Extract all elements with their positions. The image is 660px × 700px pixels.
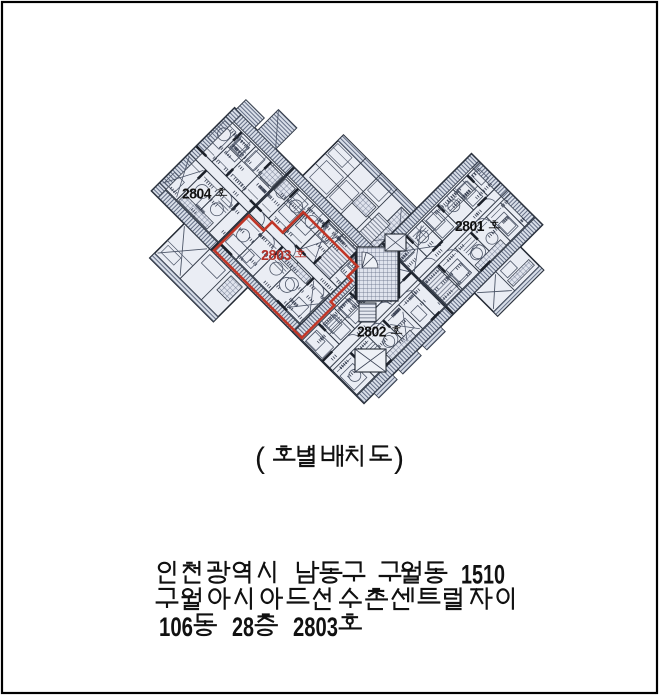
svg-text:): ) (394, 442, 404, 475)
svg-text:28: 28 (232, 612, 254, 642)
svg-text:2802: 2802 (357, 324, 386, 341)
svg-text:106: 106 (159, 612, 193, 642)
svg-text:(: ( (255, 442, 265, 475)
svg-text:2804: 2804 (182, 186, 212, 203)
svg-text:1510: 1510 (461, 560, 505, 590)
svg-text:2801: 2801 (455, 218, 484, 235)
svg-text:2803: 2803 (261, 247, 291, 264)
svg-text:2803: 2803 (293, 612, 338, 642)
